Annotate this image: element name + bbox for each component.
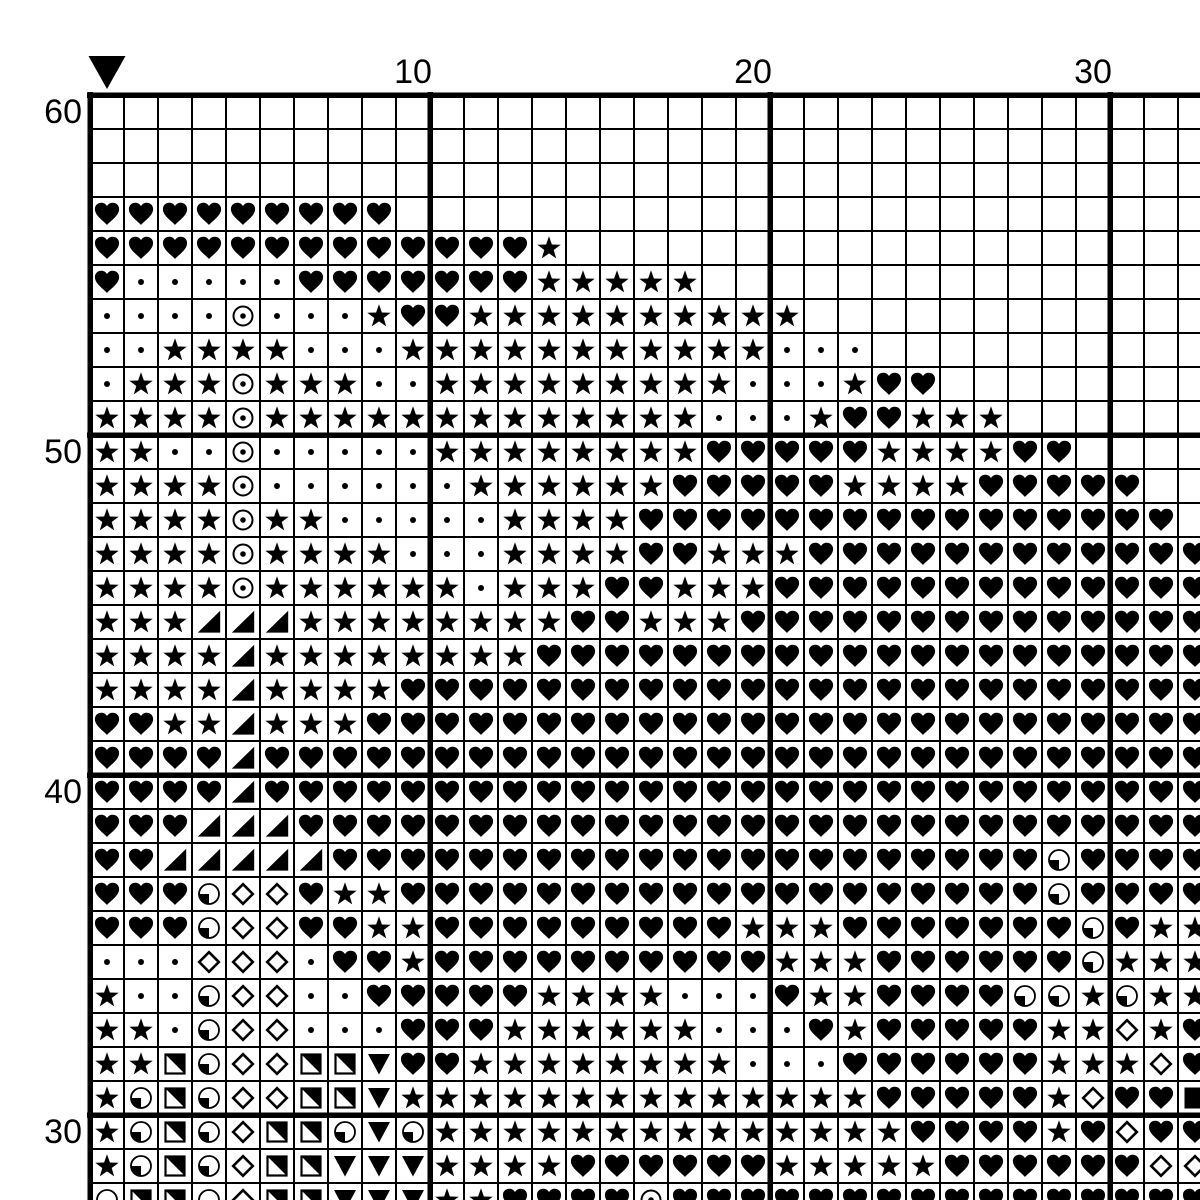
black-heart-icon bbox=[299, 883, 323, 905]
small-dot-icon bbox=[818, 1061, 824, 1067]
square-upper-right-half-black-icon bbox=[268, 1157, 287, 1176]
black-star-icon bbox=[639, 406, 662, 428]
lower-right-black-triangle-icon bbox=[232, 815, 254, 837]
black-heart-icon bbox=[707, 475, 731, 497]
black-star-icon bbox=[95, 406, 118, 428]
black-heart-icon bbox=[707, 747, 731, 769]
black-heart-icon bbox=[1183, 1019, 1200, 1041]
black-heart-icon bbox=[979, 577, 1003, 599]
black-heart-icon bbox=[435, 951, 459, 973]
black-heart-icon bbox=[1013, 747, 1037, 769]
black-heart-icon bbox=[809, 781, 833, 803]
lower-right-black-triangle-icon bbox=[232, 611, 254, 633]
black-star-icon bbox=[299, 542, 322, 564]
black-heart-icon bbox=[435, 883, 459, 905]
black-heart-icon bbox=[843, 1189, 867, 1200]
black-star-icon bbox=[469, 474, 492, 496]
black-heart-icon bbox=[1115, 713, 1139, 735]
black-star-icon bbox=[877, 1120, 900, 1142]
circle-lower-left-quarter-black-icon bbox=[199, 1054, 219, 1074]
black-star-icon bbox=[571, 372, 594, 394]
black-heart-icon bbox=[1013, 611, 1037, 633]
black-heart-icon bbox=[605, 611, 629, 633]
black-heart-icon bbox=[843, 611, 867, 633]
black-heart-icon bbox=[775, 577, 799, 599]
black-star-icon bbox=[95, 542, 118, 564]
black-star-icon bbox=[435, 440, 458, 462]
black-heart-icon bbox=[95, 713, 119, 735]
black-star-icon bbox=[333, 882, 356, 904]
black-heart-icon bbox=[707, 951, 731, 973]
black-heart-icon bbox=[945, 1155, 969, 1177]
black-heart-icon bbox=[639, 713, 663, 735]
black-heart-icon bbox=[95, 237, 119, 259]
black-heart-icon bbox=[469, 951, 493, 973]
black-star-icon bbox=[537, 440, 560, 462]
black-star-icon bbox=[809, 984, 832, 1006]
circle-lower-left-quarter-black-icon bbox=[131, 1122, 151, 1142]
black-heart-icon bbox=[1013, 475, 1037, 497]
black-star-icon bbox=[367, 576, 390, 598]
black-star-icon bbox=[775, 1086, 798, 1108]
black-heart-icon bbox=[741, 1189, 765, 1200]
black-star-icon bbox=[741, 542, 764, 564]
black-star-icon bbox=[333, 678, 356, 700]
black-heart-icon bbox=[537, 781, 561, 803]
black-heart-icon bbox=[843, 407, 867, 429]
black-heart-icon bbox=[129, 237, 153, 259]
circled-dot-icon bbox=[234, 545, 253, 564]
black-star-icon bbox=[911, 1154, 934, 1176]
black-heart-icon bbox=[605, 815, 629, 837]
black-heart-icon bbox=[673, 747, 697, 769]
black-heart-icon bbox=[1081, 781, 1105, 803]
circled-dot-icon bbox=[642, 1191, 661, 1200]
black-heart-icon bbox=[741, 1155, 765, 1177]
black-star-icon bbox=[571, 440, 594, 462]
black-heart-icon bbox=[129, 849, 153, 871]
black-heart-icon bbox=[945, 713, 969, 735]
black-heart-icon bbox=[333, 951, 357, 973]
black-star-icon bbox=[265, 712, 288, 734]
black-star-icon bbox=[877, 474, 900, 496]
small-dot-icon bbox=[716, 993, 722, 999]
black-heart-icon bbox=[1081, 747, 1105, 769]
black-heart-icon bbox=[775, 611, 799, 633]
square-upper-right-half-black-icon bbox=[336, 1055, 355, 1074]
black-heart-icon bbox=[1081, 849, 1105, 871]
square-upper-right-half-black-icon bbox=[132, 1191, 151, 1200]
black-star-icon bbox=[163, 576, 186, 598]
black-heart-icon bbox=[979, 713, 1003, 735]
black-heart-icon bbox=[911, 713, 935, 735]
black-heart-icon bbox=[775, 713, 799, 735]
black-star-icon bbox=[367, 678, 390, 700]
black-star-icon bbox=[95, 1120, 118, 1142]
black-star-icon bbox=[639, 372, 662, 394]
circled-dot-icon bbox=[234, 375, 253, 394]
black-star-icon bbox=[707, 542, 730, 564]
white-diamond-icon bbox=[267, 1020, 287, 1040]
black-heart-icon bbox=[741, 611, 765, 633]
black-heart-icon bbox=[503, 781, 527, 803]
black-heart-icon bbox=[503, 679, 527, 701]
black-heart-icon bbox=[639, 1155, 663, 1177]
small-dot-icon bbox=[138, 313, 144, 319]
black-star-icon bbox=[163, 712, 186, 734]
black-heart-icon bbox=[1115, 1189, 1139, 1200]
black-heart-icon bbox=[945, 509, 969, 531]
black-heart-icon bbox=[503, 713, 527, 735]
black-heart-icon bbox=[1047, 577, 1071, 599]
black-star-icon bbox=[1149, 1018, 1172, 1040]
black-star-icon bbox=[571, 474, 594, 496]
black-heart-icon bbox=[673, 849, 697, 871]
black-heart-icon bbox=[673, 509, 697, 531]
black-heart-icon bbox=[1081, 577, 1105, 599]
black-heart-icon bbox=[197, 781, 221, 803]
black-star-icon bbox=[129, 644, 152, 666]
black-star-icon bbox=[1081, 1018, 1104, 1040]
small-dot-icon bbox=[478, 551, 484, 557]
black-star-icon bbox=[95, 474, 118, 496]
black-heart-icon bbox=[877, 713, 901, 735]
black-star-icon bbox=[95, 1154, 118, 1176]
black-star-icon bbox=[401, 406, 424, 428]
black-star-icon bbox=[537, 1086, 560, 1108]
black-heart-icon bbox=[265, 237, 289, 259]
black-heart-icon bbox=[129, 815, 153, 837]
black-heart-icon bbox=[911, 373, 935, 395]
black-heart-icon bbox=[367, 815, 391, 837]
black-heart-icon bbox=[1183, 679, 1200, 701]
black-star-icon bbox=[605, 542, 628, 564]
row-label-30: 30 bbox=[0, 1115, 82, 1149]
black-star-icon bbox=[639, 338, 662, 360]
black-heart-icon bbox=[843, 577, 867, 599]
black-heart-icon bbox=[571, 1155, 595, 1177]
black-heart-icon bbox=[503, 883, 527, 905]
black-heart-icon bbox=[741, 815, 765, 837]
black-star-icon bbox=[537, 1120, 560, 1142]
white-diamond-icon bbox=[199, 952, 219, 972]
small-dot-icon bbox=[682, 993, 688, 999]
black-star-icon bbox=[197, 372, 220, 394]
black-star-icon bbox=[265, 644, 288, 666]
black-heart-icon bbox=[231, 237, 255, 259]
black-heart-icon bbox=[673, 645, 697, 667]
black-star-icon bbox=[945, 406, 968, 428]
black-heart-icon bbox=[741, 951, 765, 973]
lower-right-black-triangle-icon bbox=[266, 611, 288, 633]
black-heart-icon bbox=[435, 917, 459, 939]
black-star-icon bbox=[639, 474, 662, 496]
black-star-icon bbox=[843, 1154, 866, 1176]
black-heart-icon bbox=[809, 475, 833, 497]
center-marker-down-triangle-icon bbox=[89, 56, 126, 89]
black-star-icon bbox=[265, 542, 288, 564]
black-star-icon bbox=[197, 678, 220, 700]
white-diamond-icon bbox=[233, 1156, 253, 1176]
black-star-icon bbox=[639, 440, 662, 462]
black-heart-icon bbox=[537, 1189, 561, 1200]
black-heart-icon bbox=[1115, 781, 1139, 803]
black-heart-icon bbox=[911, 509, 935, 531]
black-star-icon bbox=[163, 508, 186, 530]
black-heart-icon bbox=[571, 679, 595, 701]
black-heart-icon bbox=[1047, 1189, 1071, 1200]
black-star-icon bbox=[571, 270, 594, 292]
white-diamond-icon bbox=[233, 952, 253, 972]
black-star-icon bbox=[843, 1120, 866, 1142]
black-heart-icon bbox=[1013, 883, 1037, 905]
black-star-icon bbox=[197, 576, 220, 598]
circle-lower-left-quarter-black-icon bbox=[199, 1122, 219, 1142]
row-label-60: 60 bbox=[0, 95, 82, 129]
black-heart-icon bbox=[741, 475, 765, 497]
black-heart-icon bbox=[775, 985, 799, 1007]
black-star-icon bbox=[401, 576, 424, 598]
pattern-grid bbox=[0, 0, 1200, 1200]
black-star-icon bbox=[571, 406, 594, 428]
black-star-icon bbox=[95, 576, 118, 598]
black-star-icon bbox=[571, 984, 594, 1006]
black-star-icon bbox=[367, 406, 390, 428]
black-heart-icon bbox=[571, 815, 595, 837]
black-star-icon bbox=[129, 1018, 152, 1040]
black-star-icon bbox=[707, 338, 730, 360]
black-star-icon bbox=[911, 474, 934, 496]
black-star-icon bbox=[1115, 950, 1138, 972]
black-star-icon bbox=[503, 406, 526, 428]
square-upper-right-half-black-icon bbox=[268, 1123, 287, 1142]
white-diamond-icon bbox=[1151, 1156, 1171, 1176]
black-heart-icon bbox=[741, 645, 765, 667]
black-star-icon bbox=[129, 610, 152, 632]
black-heart-icon bbox=[401, 747, 425, 769]
square-upper-right-half-black-icon bbox=[166, 1055, 185, 1074]
black-heart-icon bbox=[571, 883, 595, 905]
black-heart-icon bbox=[775, 781, 799, 803]
black-heart-icon bbox=[707, 849, 731, 871]
black-heart-icon bbox=[537, 849, 561, 871]
black-star-icon bbox=[469, 304, 492, 326]
black-heart-icon bbox=[673, 713, 697, 735]
small-dot-icon bbox=[784, 347, 790, 353]
black-heart-icon bbox=[1183, 1189, 1200, 1200]
black-heart-icon bbox=[469, 679, 493, 701]
black-heart-icon bbox=[1149, 543, 1173, 565]
black-star-icon bbox=[435, 644, 458, 666]
black-star-icon bbox=[1183, 984, 1200, 1006]
black-heart-icon bbox=[843, 747, 867, 769]
black-star-icon bbox=[265, 576, 288, 598]
black-star-icon bbox=[469, 1188, 492, 1200]
black-heart-icon bbox=[299, 747, 323, 769]
black-heart-icon bbox=[1115, 747, 1139, 769]
circle-lower-left-quarter-black-icon bbox=[1049, 986, 1069, 1006]
circle-lower-left-quarter-black-icon bbox=[1049, 884, 1069, 904]
black-heart-icon bbox=[775, 645, 799, 667]
black-heart-icon bbox=[605, 1189, 629, 1200]
black-heart-icon bbox=[775, 441, 799, 463]
black-star-icon bbox=[809, 950, 832, 972]
black-star-icon bbox=[673, 372, 696, 394]
black-heart-icon bbox=[979, 747, 1003, 769]
small-dot-icon bbox=[376, 1027, 382, 1033]
black-star-icon bbox=[639, 270, 662, 292]
black-heart-icon bbox=[775, 475, 799, 497]
black-heart-icon bbox=[537, 815, 561, 837]
black-star-icon bbox=[571, 542, 594, 564]
black-star-icon bbox=[197, 542, 220, 564]
black-heart-icon bbox=[1081, 1121, 1105, 1143]
black-heart-icon bbox=[333, 917, 357, 939]
black-heart-icon bbox=[537, 747, 561, 769]
black-heart-icon bbox=[435, 849, 459, 871]
black-heart-icon bbox=[979, 985, 1003, 1007]
black-star-icon bbox=[741, 304, 764, 326]
black-star-icon bbox=[605, 1120, 628, 1142]
black-heart-icon bbox=[979, 509, 1003, 531]
black-heart-icon bbox=[843, 815, 867, 837]
black-star-icon bbox=[911, 440, 934, 462]
lower-right-black-triangle-icon bbox=[232, 645, 254, 667]
black-star-icon bbox=[503, 372, 526, 394]
black-heart-icon bbox=[775, 883, 799, 905]
black-heart-icon bbox=[979, 781, 1003, 803]
black-heart-icon bbox=[707, 645, 731, 667]
black-heart-icon bbox=[503, 849, 527, 871]
black-heart-icon bbox=[945, 1019, 969, 1041]
black-heart-icon bbox=[877, 611, 901, 633]
black-heart-icon bbox=[435, 679, 459, 701]
black-heart-icon bbox=[775, 815, 799, 837]
black-star-icon bbox=[129, 542, 152, 564]
black-down-triangle-icon bbox=[402, 1190, 424, 1200]
black-heart-icon bbox=[469, 271, 493, 293]
black-star-icon bbox=[571, 338, 594, 360]
black-star-icon bbox=[639, 304, 662, 326]
black-star-icon bbox=[469, 1052, 492, 1074]
black-heart-icon bbox=[1183, 849, 1200, 871]
black-star-icon bbox=[197, 406, 220, 428]
white-diamond-icon bbox=[233, 1190, 253, 1200]
black-star-icon bbox=[435, 610, 458, 632]
black-heart-icon bbox=[741, 747, 765, 769]
black-heart-icon bbox=[367, 951, 391, 973]
black-heart-icon bbox=[1115, 1087, 1139, 1109]
black-heart-icon bbox=[537, 679, 561, 701]
black-star-icon bbox=[367, 304, 390, 326]
black-heart-icon bbox=[333, 271, 357, 293]
black-heart-icon bbox=[1013, 1155, 1037, 1177]
small-dot-icon bbox=[274, 483, 280, 489]
lower-right-black-triangle-icon bbox=[198, 815, 220, 837]
black-heart-icon bbox=[299, 781, 323, 803]
black-heart-icon bbox=[503, 237, 527, 259]
black-heart-icon bbox=[877, 781, 901, 803]
black-heart-icon bbox=[1149, 747, 1173, 769]
black-star-icon bbox=[163, 542, 186, 564]
black-heart-icon bbox=[911, 815, 935, 837]
black-star-icon bbox=[673, 1086, 696, 1108]
black-star-icon bbox=[673, 406, 696, 428]
black-heart-icon bbox=[877, 917, 901, 939]
small-dot-icon bbox=[104, 381, 110, 387]
black-down-triangle-icon bbox=[402, 1156, 424, 1177]
black-heart-icon bbox=[809, 679, 833, 701]
black-heart-icon bbox=[843, 543, 867, 565]
black-star-icon bbox=[95, 1018, 118, 1040]
small-dot-icon bbox=[172, 313, 178, 319]
small-dot-icon bbox=[308, 959, 314, 965]
black-heart-icon bbox=[843, 441, 867, 463]
black-heart-icon bbox=[673, 781, 697, 803]
black-heart-icon bbox=[537, 713, 561, 735]
small-dot-icon bbox=[410, 483, 416, 489]
black-star-icon bbox=[299, 610, 322, 632]
small-dot-icon bbox=[376, 449, 382, 455]
black-heart-icon bbox=[1115, 849, 1139, 871]
black-heart-icon bbox=[707, 441, 731, 463]
black-star-icon bbox=[639, 1018, 662, 1040]
lower-right-black-triangle-icon bbox=[266, 849, 288, 871]
black-heart-icon bbox=[537, 883, 561, 905]
black-heart-icon bbox=[1013, 781, 1037, 803]
black-star-icon bbox=[333, 644, 356, 666]
black-heart-icon bbox=[571, 781, 595, 803]
square-upper-right-half-black-icon bbox=[302, 1089, 321, 1108]
black-star-icon bbox=[469, 1154, 492, 1176]
black-heart-icon bbox=[95, 747, 119, 769]
black-heart-icon bbox=[1013, 1019, 1037, 1041]
black-star-icon bbox=[571, 304, 594, 326]
black-star-icon bbox=[503, 304, 526, 326]
small-dot-icon bbox=[410, 551, 416, 557]
black-star-icon bbox=[265, 372, 288, 394]
black-heart-icon bbox=[469, 237, 493, 259]
black-heart-icon bbox=[1149, 577, 1173, 599]
black-heart-icon bbox=[911, 781, 935, 803]
black-star-icon bbox=[537, 508, 560, 530]
black-star-icon bbox=[95, 610, 118, 632]
black-heart-icon bbox=[979, 543, 1003, 565]
black-heart-icon bbox=[1047, 509, 1071, 531]
black-heart-icon bbox=[877, 1087, 901, 1109]
black-star-icon bbox=[537, 236, 560, 258]
small-dot-icon bbox=[172, 993, 178, 999]
black-heart-icon bbox=[775, 509, 799, 531]
black-star-icon bbox=[469, 372, 492, 394]
black-heart-icon bbox=[1115, 679, 1139, 701]
black-star-icon bbox=[503, 1052, 526, 1074]
black-star-icon bbox=[843, 372, 866, 394]
black-heart-icon bbox=[605, 577, 629, 599]
black-star-icon bbox=[503, 1120, 526, 1142]
black-heart-icon bbox=[1115, 543, 1139, 565]
black-heart-icon bbox=[469, 747, 493, 769]
black-down-triangle-icon bbox=[368, 1122, 390, 1143]
black-star-icon bbox=[503, 1018, 526, 1040]
black-star-icon bbox=[809, 1120, 832, 1142]
small-dot-icon bbox=[342, 449, 348, 455]
black-star-icon bbox=[945, 474, 968, 496]
black-heart-icon bbox=[401, 237, 425, 259]
black-heart-icon bbox=[1149, 713, 1173, 735]
circled-dot-icon bbox=[234, 511, 253, 530]
black-star-icon bbox=[1047, 1052, 1070, 1074]
